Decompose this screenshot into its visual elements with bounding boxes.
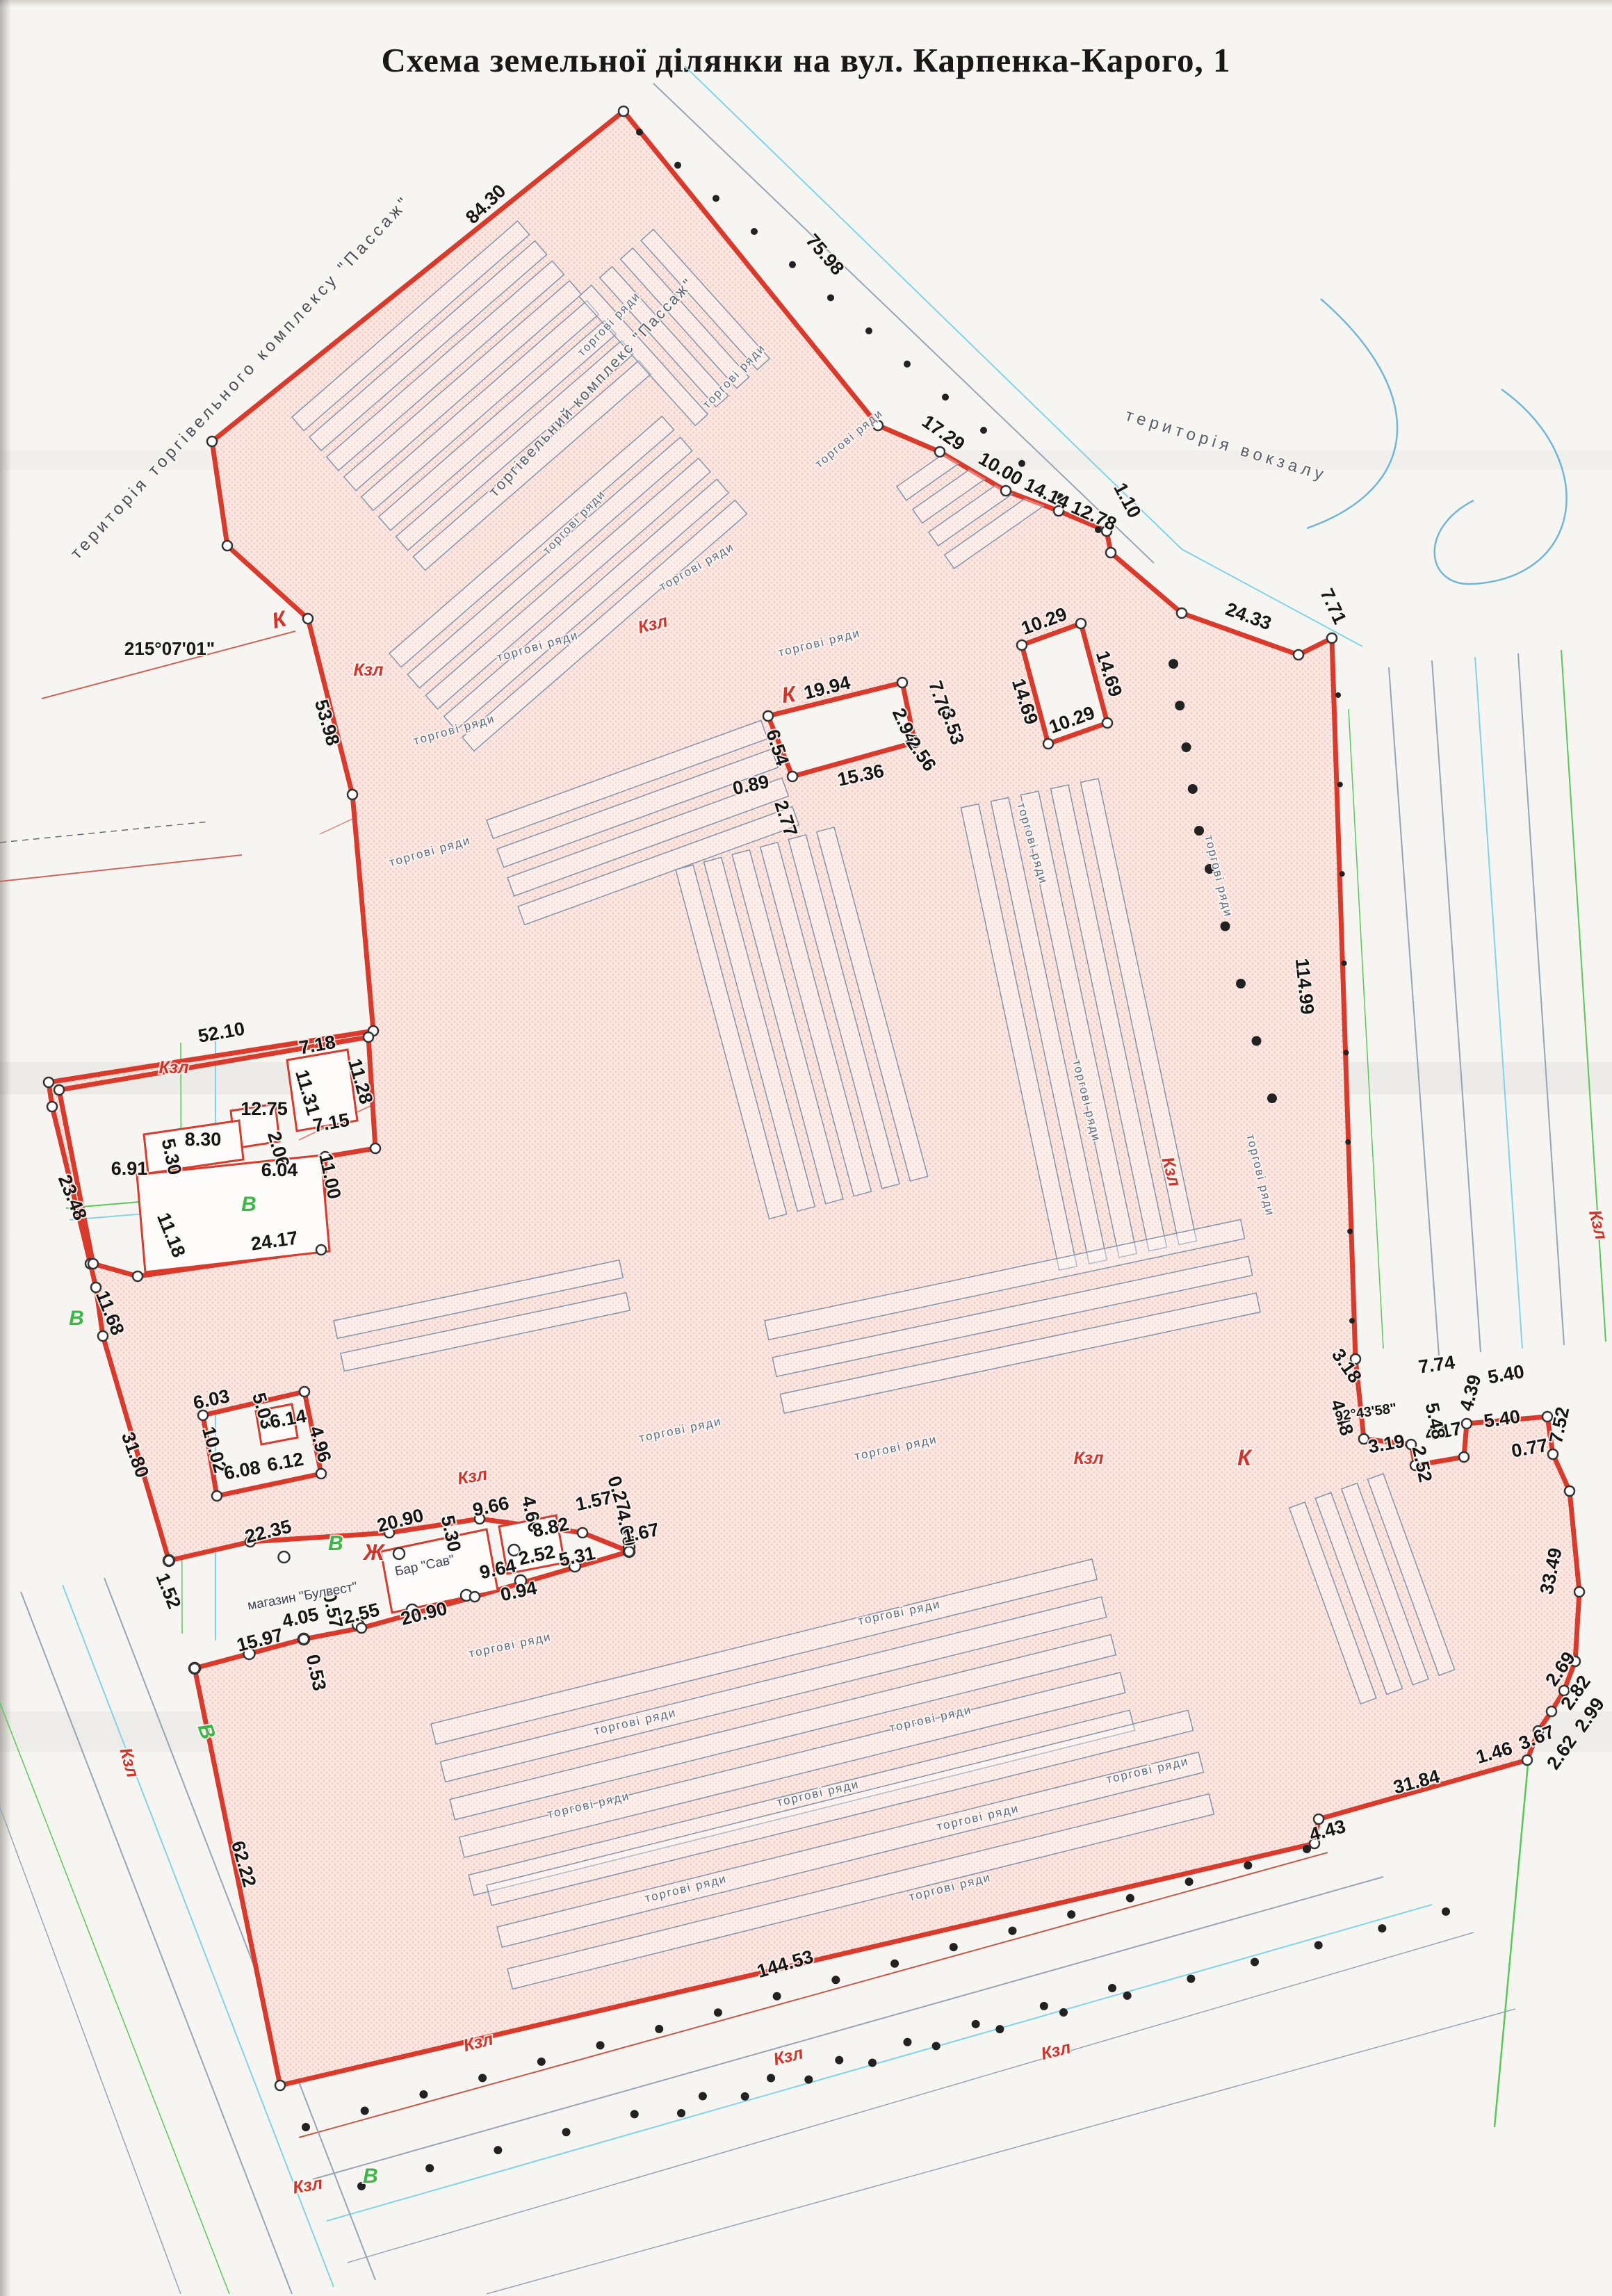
vertex-marker	[1548, 1449, 1558, 1459]
survey-dot	[1378, 1924, 1386, 1932]
vertex-marker	[348, 790, 357, 799]
dimension-label: 5.40	[1486, 1361, 1526, 1388]
survey-dot	[831, 1976, 840, 1984]
dimension-label: 75.98	[801, 230, 848, 279]
vertex-marker	[44, 1077, 54, 1087]
vertex-marker	[1106, 548, 1116, 557]
context-line	[0, 1807, 181, 2294]
survey-dot	[630, 2110, 639, 2118]
survey-dot	[1442, 1907, 1450, 1916]
survey-dot	[1251, 1958, 1259, 1967]
vertex-marker	[1177, 608, 1187, 618]
vertex-marker	[1574, 1587, 1584, 1597]
vertex-marker	[316, 1245, 326, 1255]
survey-dot	[302, 2123, 310, 2131]
survey-dot	[562, 2128, 571, 2136]
vertex-marker	[207, 437, 217, 446]
survey-dot	[950, 1943, 958, 1951]
survey-dot	[1040, 2002, 1048, 2010]
survey-dot	[942, 393, 949, 400]
vertex-marker	[279, 1552, 290, 1563]
survey-dot	[419, 2090, 428, 2099]
survey-dot	[1345, 1139, 1351, 1145]
vertex-marker	[88, 1259, 98, 1269]
survey-dot	[478, 2074, 487, 2082]
survey-dot	[537, 2058, 546, 2066]
survey-dot	[1347, 1228, 1353, 1234]
survey-dot	[1108, 1984, 1116, 1992]
angle-label: 215°07'01"	[124, 638, 215, 659]
vertex-marker	[1327, 633, 1337, 643]
vertex-marker	[1076, 619, 1086, 628]
vertex-marker	[935, 447, 945, 457]
utility-label: Кзл	[1039, 2037, 1073, 2064]
context-line	[0, 1703, 229, 2294]
survey-dot	[1343, 1050, 1349, 1055]
survey-dot	[714, 2008, 722, 2017]
vertex-marker	[190, 1663, 200, 1673]
dimension-label: 7.74	[1417, 1352, 1456, 1378]
survey-dot	[1236, 979, 1246, 988]
vertex-marker	[371, 1143, 380, 1153]
utility-label: Кзл	[1585, 1208, 1611, 1242]
vertex-marker	[316, 1469, 326, 1479]
survey-dot	[1335, 692, 1341, 698]
survey-dot	[596, 2041, 605, 2049]
survey-dot	[1018, 460, 1025, 467]
vertex-marker	[300, 1387, 309, 1397]
vertex-marker	[1102, 718, 1112, 728]
dimension-label: 4.05	[280, 1604, 320, 1631]
vertex-marker	[624, 1547, 634, 1556]
survey-dot	[1349, 1318, 1355, 1324]
dimension-label: 7.71	[1316, 585, 1350, 627]
survey-dot	[1187, 1975, 1195, 1983]
context-curve	[1307, 299, 1397, 528]
survey-dot	[741, 2092, 749, 2101]
survey-dot	[903, 2038, 911, 2046]
water-label: В	[328, 1532, 343, 1555]
dimension-label: 12.75	[241, 1098, 288, 1119]
vertex-marker	[222, 541, 232, 551]
survey-dot	[674, 162, 681, 169]
vertex-marker	[1459, 1452, 1469, 1462]
survey-dot	[1267, 1093, 1277, 1103]
vertex-marker	[470, 1592, 480, 1602]
vertex-marker	[275, 2081, 285, 2090]
context-line	[487, 2009, 1515, 2294]
survey-dot	[361, 2106, 369, 2115]
water-label: В	[69, 1307, 84, 1330]
survey-dot	[1123, 1992, 1132, 2000]
vertex-marker	[47, 1102, 57, 1112]
vertex-marker	[619, 106, 628, 116]
context-curve	[1435, 389, 1567, 584]
survey-dot	[890, 1960, 899, 1968]
context-line	[1518, 653, 1564, 1345]
survey-dot	[494, 2146, 502, 2154]
survey-dot	[1337, 782, 1343, 788]
utility-label: Кзл	[353, 660, 384, 680]
dimension-label: 8.30	[185, 1129, 222, 1150]
survey-dot	[1342, 961, 1347, 966]
survey-dot	[655, 2025, 663, 2033]
dimension-label: 6.91	[111, 1158, 148, 1179]
survey-dot	[1169, 659, 1178, 669]
vertex-marker	[303, 614, 313, 624]
survey-dot	[1185, 1878, 1194, 1886]
survey-dot	[1194, 826, 1204, 836]
vertex-marker	[1547, 1707, 1556, 1716]
vertex-marker	[1565, 1486, 1574, 1496]
dimension-label: 6.12	[266, 1449, 305, 1476]
water-label: В	[241, 1193, 257, 1216]
water-label: В	[363, 2165, 378, 2188]
vertex-marker	[1294, 650, 1303, 660]
survey-dot	[636, 129, 643, 136]
vertex-marker	[393, 1548, 405, 1559]
dimension-label: 4.39	[1456, 1372, 1485, 1413]
utility-label: Кзл	[1073, 1449, 1104, 1468]
survey-dot	[1182, 742, 1191, 752]
utility-label: Кзл	[158, 1058, 189, 1077]
survey-dot	[1188, 784, 1198, 794]
survey-dot	[713, 195, 719, 202]
context-line	[0, 822, 209, 842]
vertex-marker	[1522, 1755, 1532, 1765]
vertex-marker	[1017, 640, 1027, 650]
survey-dot	[827, 294, 834, 301]
survey-dot	[1221, 922, 1230, 931]
dimension-label: 52.10	[197, 1018, 247, 1046]
vertex-marker	[364, 1032, 373, 1042]
vertex-marker	[91, 1283, 101, 1292]
vertex-marker	[578, 1528, 587, 1538]
utility-label: К	[1237, 1445, 1253, 1470]
dimension-label: 6.04	[261, 1159, 298, 1180]
context-line	[1475, 657, 1522, 1349]
vertex-marker	[897, 678, 907, 687]
survey-dot	[835, 2056, 843, 2065]
vertex-marker	[98, 1331, 108, 1341]
scanned-page: Схема земельної ділянки на вул. Карпенка…	[0, 0, 1612, 2296]
vertex-marker	[788, 772, 797, 781]
survey-dot	[789, 261, 796, 268]
vertex-marker	[1043, 739, 1053, 749]
utility-label: К	[269, 605, 290, 633]
vertex-marker	[763, 711, 773, 721]
site-plan: 84.3075.9817.2910.0014.1412.781.1024.337…	[0, 0, 1612, 2296]
survey-dot	[980, 427, 987, 434]
survey-dot	[904, 361, 911, 368]
utility-label: Ж	[362, 1540, 386, 1565]
vertex-marker	[1462, 1419, 1472, 1428]
survey-dot	[699, 2092, 707, 2100]
survey-dot	[1340, 871, 1345, 877]
dimension-label: 23.48	[54, 1172, 91, 1223]
utility-label: Кзл	[115, 1745, 143, 1780]
survey-dot	[425, 2164, 434, 2172]
vertex-marker	[164, 1556, 174, 1565]
utility-label: Кзл	[772, 2043, 806, 2069]
survey-dot	[995, 2025, 1004, 2033]
survey-dot	[767, 2074, 775, 2083]
survey-dot	[865, 327, 872, 334]
survey-dot	[751, 228, 758, 235]
vertex-marker	[299, 1634, 309, 1644]
survey-dot	[1059, 2008, 1068, 2017]
survey-dot	[868, 2059, 877, 2067]
context-line	[0, 855, 242, 881]
vertex-marker	[212, 1491, 222, 1501]
vertex-marker	[133, 1271, 143, 1281]
survey-dot	[1067, 1910, 1075, 1919]
survey-dot	[804, 2076, 813, 2084]
vertex-marker	[54, 1085, 64, 1095]
survey-dot	[677, 2109, 685, 2117]
survey-dot	[932, 2042, 941, 2050]
context-line	[1432, 660, 1481, 1352]
survey-dot	[1252, 1036, 1262, 1046]
survey-dot	[1008, 1927, 1016, 1935]
survey-dot	[1126, 1894, 1134, 1903]
area-name-label: територія вокзалу	[1123, 406, 1330, 485]
dimension-label: 1.52	[152, 1570, 186, 1612]
context-line	[1389, 667, 1439, 1355]
dimension-label: 7.52	[1545, 1405, 1573, 1445]
survey-dot	[1175, 701, 1184, 710]
survey-dot	[1244, 1862, 1252, 1870]
vertex-marker	[1001, 486, 1011, 496]
survey-dot	[972, 2020, 980, 2028]
survey-dot	[773, 1992, 781, 2001]
utility-label: Кзл	[291, 2174, 325, 2198]
survey-dot	[1314, 1941, 1323, 1949]
